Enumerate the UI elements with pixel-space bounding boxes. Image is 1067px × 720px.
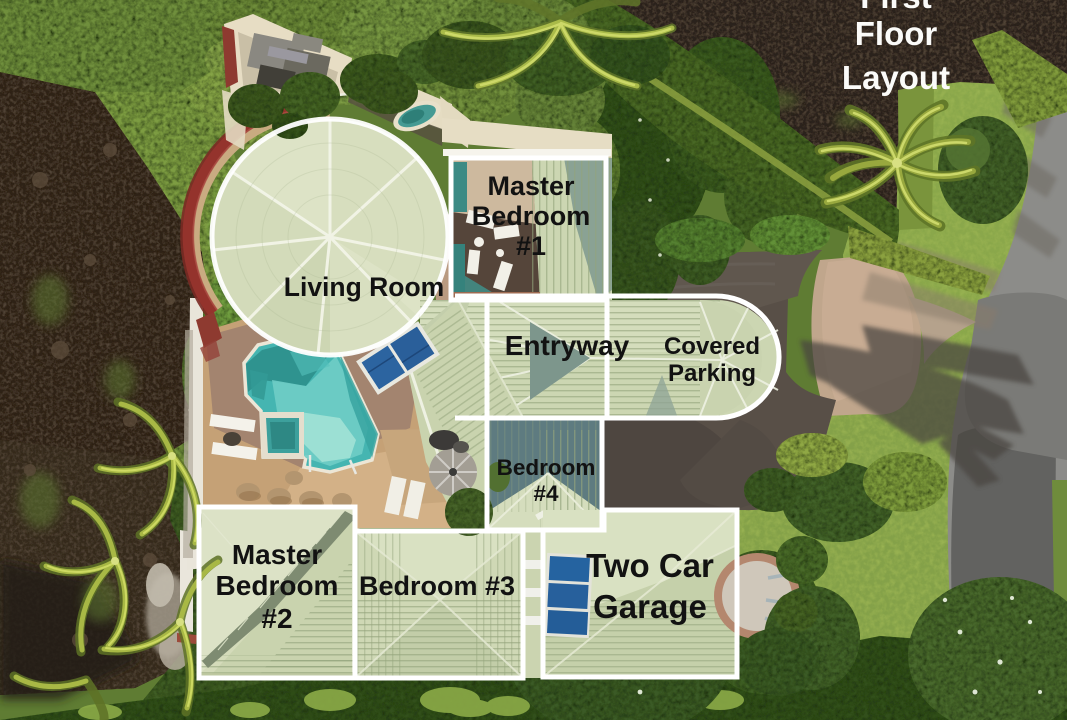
svg-text:Bedroom: Bedroom <box>472 201 591 231</box>
svg-text:Garage: Garage <box>593 588 707 625</box>
svg-text:#2: #2 <box>261 603 292 634</box>
svg-text:Layout: Layout <box>842 59 950 96</box>
svg-text:Covered: Covered <box>664 333 760 360</box>
svg-text:#1: #1 <box>516 231 546 261</box>
svg-text:First: First <box>860 0 932 15</box>
svg-text:Floor: Floor <box>855 15 938 52</box>
svg-text:Bedroom: Bedroom <box>497 455 596 480</box>
svg-text:Master: Master <box>487 171 575 201</box>
svg-text:Parking: Parking <box>668 360 756 387</box>
svg-text:Bedroom: Bedroom <box>216 570 339 601</box>
svg-text:Two Car: Two Car <box>586 547 714 584</box>
svg-text:Entryway: Entryway <box>505 330 630 361</box>
svg-text:Master: Master <box>232 539 322 570</box>
svg-text:Living Room: Living Room <box>284 272 444 302</box>
svg-text:#4: #4 <box>533 481 559 506</box>
svg-text:Bedroom #3: Bedroom #3 <box>359 571 515 601</box>
